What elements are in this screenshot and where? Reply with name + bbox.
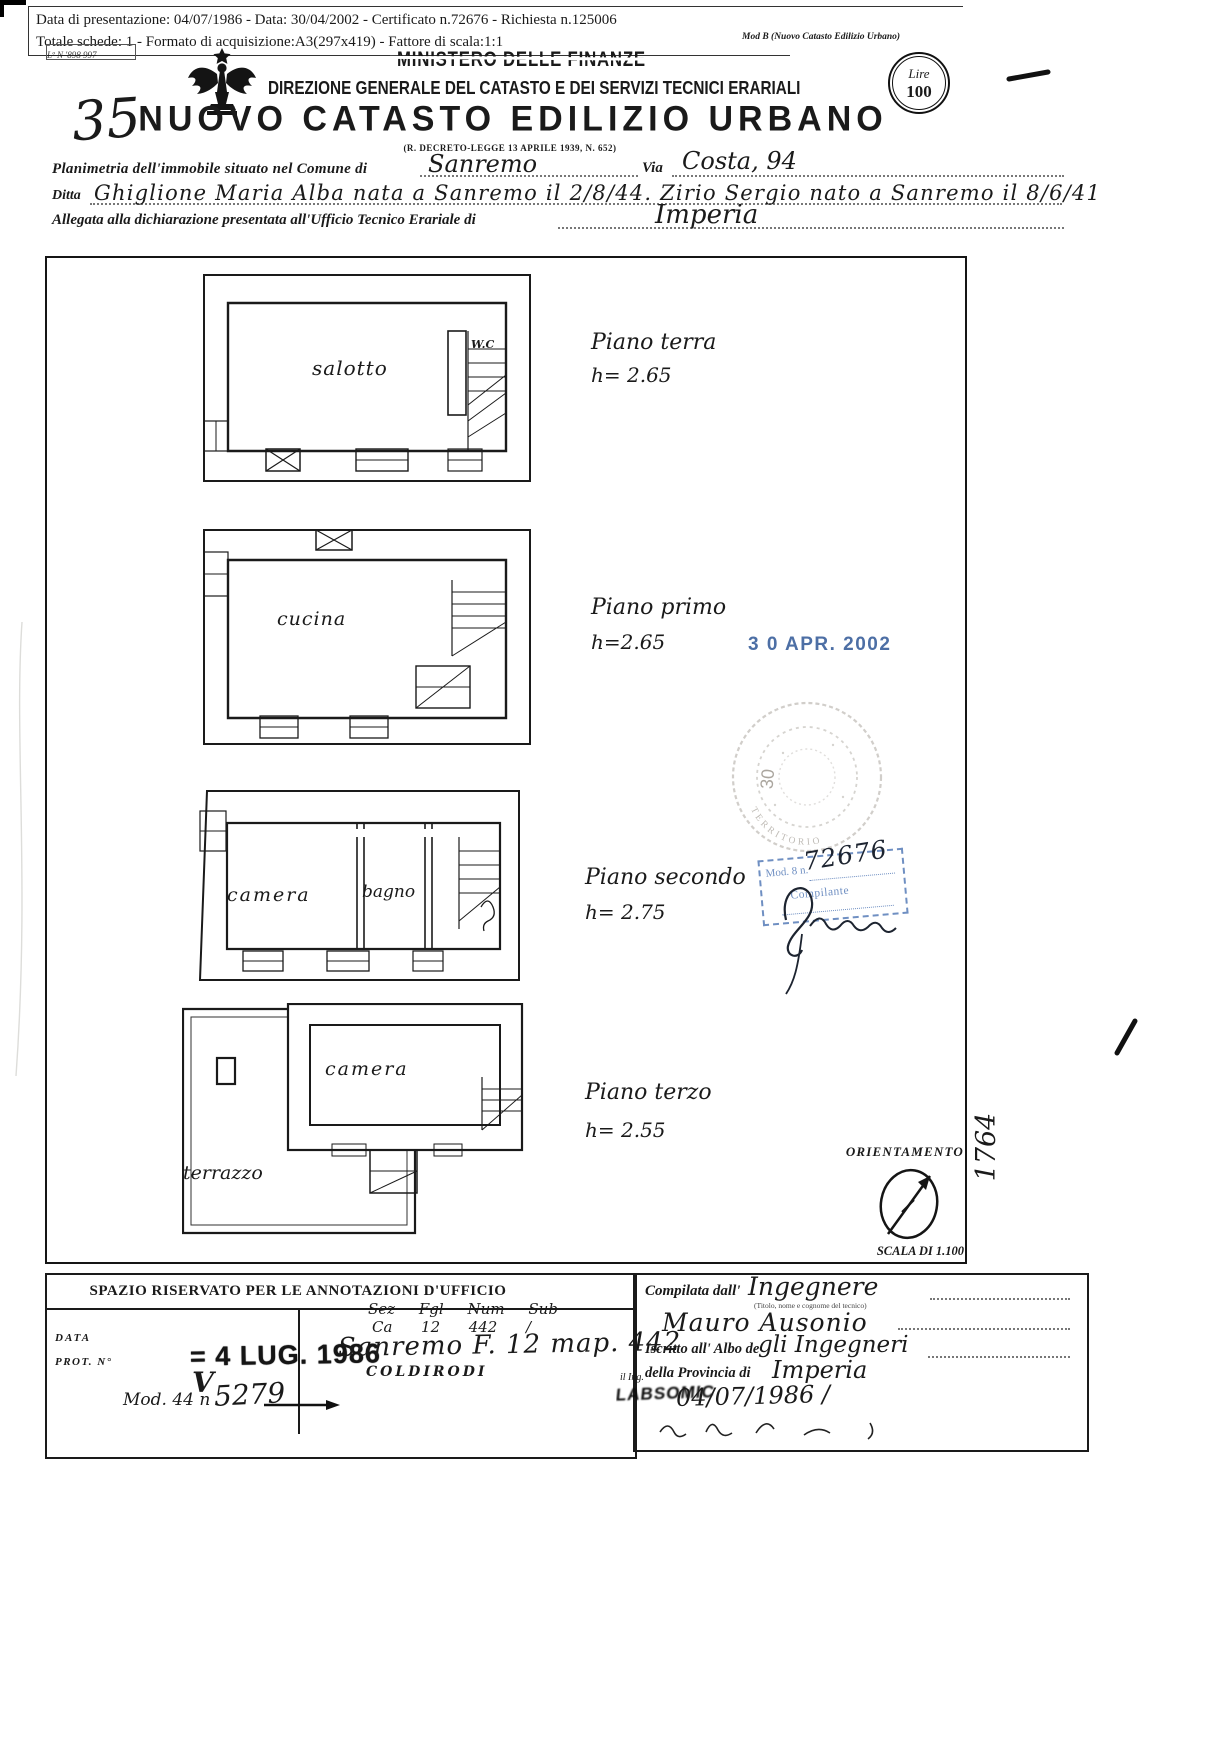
room-label-salotto: salotto [312,356,388,380]
compilata-dotted [930,1284,1070,1300]
room-label-cucina: cucina [277,608,346,630]
prot-label: PROT. N° [55,1356,113,1368]
margin-slash-mark [1112,1016,1140,1058]
scan-corner-mark [0,0,4,17]
mod-b-label: Mod B (Nuovo Catasto Edilizio Urbano) [742,32,900,42]
scala-label: SCALA DI 1.100 [830,1244,964,1259]
provincia-label: della Provincia di [645,1365,751,1382]
annotation-arrow [262,1398,344,1412]
received-date-stamp: 3 0 APR. 2002 [748,634,891,656]
ditta-label: Ditta [52,188,81,204]
margin-dash-mark [1006,66,1052,86]
comune-value: Sanremo [428,150,537,178]
nome-dotted [898,1314,1070,1330]
iscritto-dotted [928,1342,1070,1358]
frazione-handwritten: COLDIRODI [366,1364,487,1380]
allegata-dotted-line [558,210,1064,229]
compilata-label: Compilata dall' [645,1283,740,1300]
via-label: Via [642,160,663,177]
annotations-title: SPAZIO RISERVATO PER LE ANNOTAZIONI D'UF… [45,1283,551,1300]
floor-label-piano-terzo: Piano terzo [585,1080,712,1105]
compilante-signature [752,876,912,996]
compass-icon [872,1164,946,1244]
iscritto-label: Iscritto all' Albo de [645,1341,759,1358]
compilata-value: Ingegnere [748,1272,878,1301]
via-value: Costa, 94 [682,147,797,175]
mappale-handwritten: Sanremo F. 12 map. 442 [338,1327,682,1363]
round-stamp-arc-text: TERRITORIO [748,806,823,848]
room-label-camera-2: camera [227,884,311,906]
old-protocol-box: Lº N '898 997 [46,44,136,60]
floor-plan-piano-primo [202,528,532,746]
floor-height-piano-terra: h= 2.65 [591,363,672,387]
scanned-cadastral-document: Data di presentazione: 04/07/1986 - Data… [0,0,1227,1742]
meta-box-line [28,6,29,56]
floor-label-piano-secondo: Piano secondo [585,865,746,890]
svg-text:TERRITORIO: TERRITORIO [748,806,823,848]
round-office-stamp: 30 TERRITORIO [723,693,891,861]
floor-height-piano-secondo: h= 2.75 [585,900,666,924]
floor-plan-piano-terzo [182,1003,527,1235]
ing-label: il Ing. [620,1372,644,1383]
room-label-bagno: bagno [362,882,415,902]
room-label-camera-3: camera [325,1058,409,1080]
cadastral-col-headers: Sez Fgl Num Sub [368,1300,558,1318]
ministero-clip: MINISTERO DELLE FINANZE [397,50,727,72]
meta-line-1: Data di presentazione: 04/07/1986 - Data… [36,12,617,29]
floor-label-piano-terra: Piano terra [591,330,716,355]
ministero-title: MINISTERO DELLE FINANZE [397,50,661,72]
scan-crease [8,620,38,1080]
data-label: DATA [55,1332,91,1344]
document-title: NUOVO CATASTO EDILIZIO URBANO [118,99,908,140]
floor-height-piano-terzo: h= 2.55 [585,1118,666,1142]
illegible-scribble [655,1412,905,1444]
round-stamp-number: 30 [757,768,779,790]
floor-label-piano-primo: Piano primo [591,595,726,620]
floor-height-piano-primo: h=2.65 [591,630,665,654]
margin-number-vertical: 1764 [971,1091,1001,1203]
ditta-value: Ghiglione Maria Alba nata a Sanremo il 2… [94,181,1101,205]
planimetria-label: Planimetria dell'immobile situato nel Co… [52,161,367,178]
annotations-divider [298,1310,300,1434]
allegata-label: Allegata alla dichiarazione presentata a… [52,212,476,229]
mod44-check: V [192,1366,214,1399]
iscritto-value: gli Ingegneri [758,1332,908,1358]
room-label-wc: W.C [471,338,494,351]
room-label-terrazzo: terrazzo [183,1162,263,1184]
lire-word: Lire [893,66,945,82]
ufficio-value: Imperia [655,200,758,230]
orientamento-label: ORIENTAMENTO [806,1144,964,1160]
old-protocol-note: Lº N '898 997 [47,50,96,60]
meta-box-line [28,6,963,7]
firma-data-handwritten: 04/07/1986 / [676,1380,831,1412]
direzione-title: DIREZIONE GENERALE DEL CATASTO E DEI SER… [268,78,800,99]
